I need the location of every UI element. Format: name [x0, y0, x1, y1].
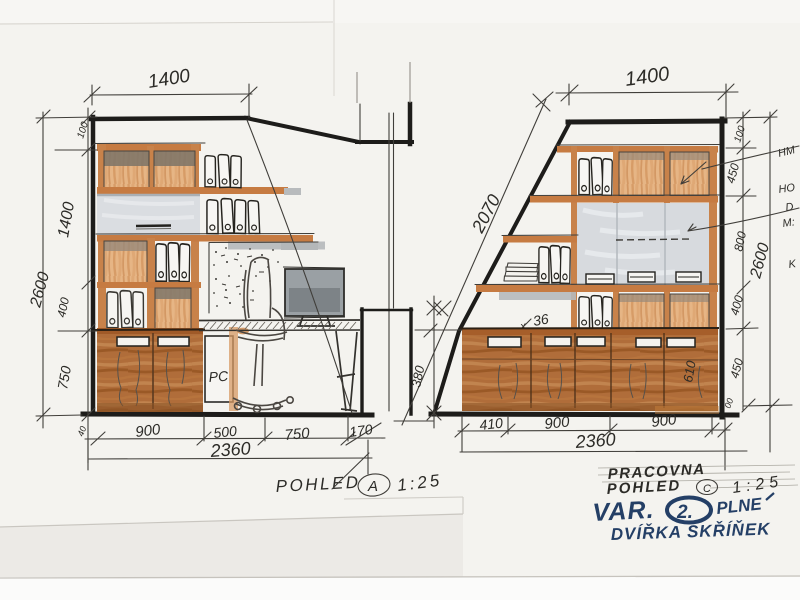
svg-text:VAR.: VAR. — [592, 496, 655, 527]
svg-text:36: 36 — [532, 310, 550, 328]
svg-text:500: 500 — [213, 423, 238, 441]
svg-text:410: 410 — [479, 415, 504, 433]
svg-text:HO: HO — [778, 182, 796, 196]
svg-text:170: 170 — [348, 421, 374, 440]
svg-text:2.: 2. — [676, 502, 693, 523]
svg-text:M:: M: — [782, 216, 796, 230]
svg-text:900: 900 — [544, 413, 571, 433]
svg-text:A: A — [367, 478, 378, 495]
svg-text:PC: PC — [208, 368, 229, 385]
svg-text:2360: 2360 — [574, 429, 616, 452]
svg-text:C: C — [703, 483, 711, 495]
svg-text:900: 900 — [134, 421, 162, 441]
svg-text:750: 750 — [284, 425, 311, 444]
svg-text:2360: 2360 — [209, 438, 251, 461]
